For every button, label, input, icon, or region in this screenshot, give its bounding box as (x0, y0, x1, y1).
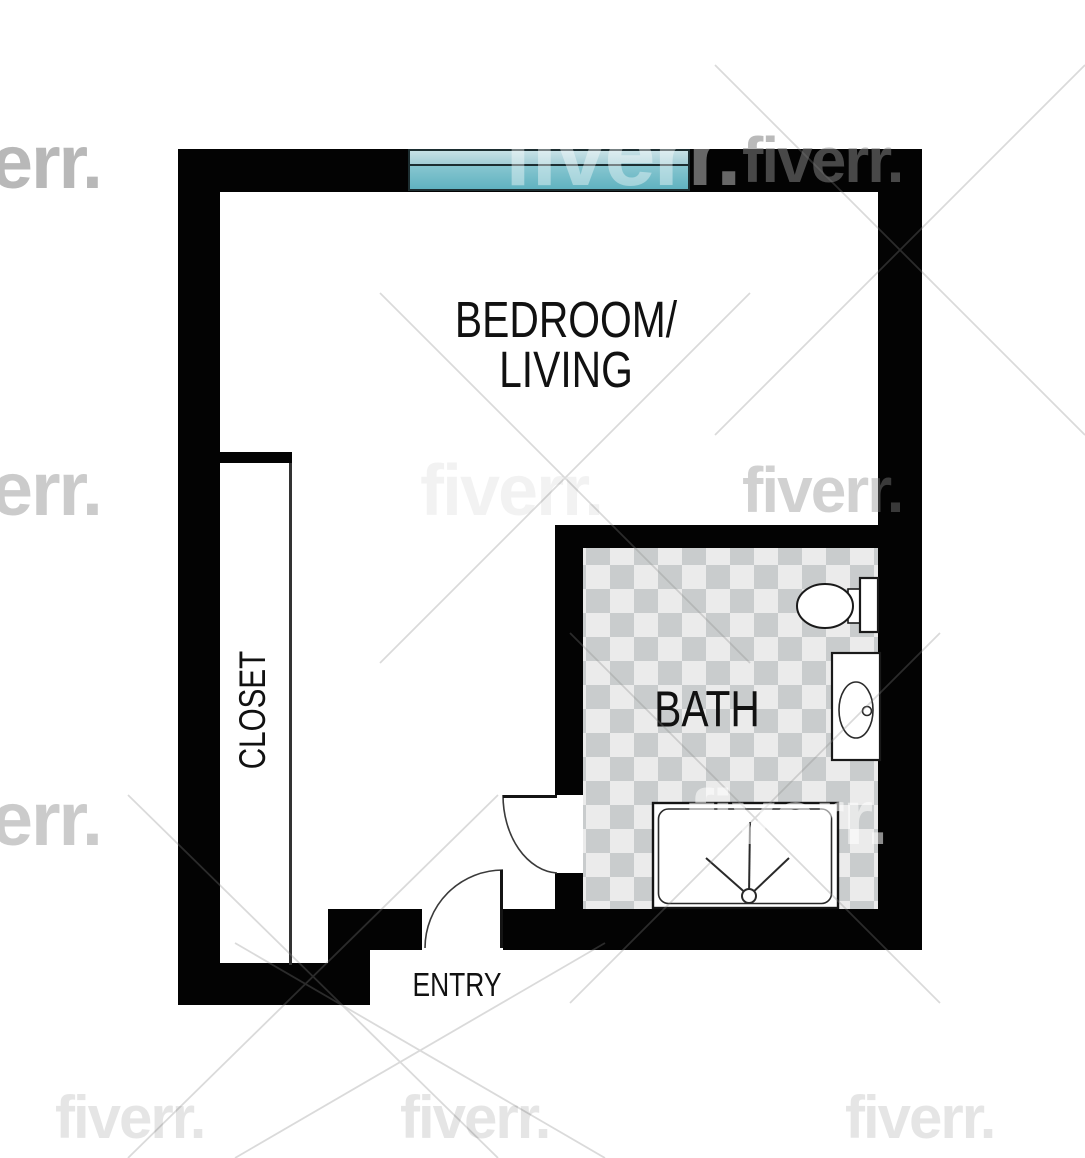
watermark-pattern-lines (0, 0, 1085, 1158)
floor-plan: BEDROOM/LIVING BATH ENTRY CLOSET (0, 0, 1085, 1158)
